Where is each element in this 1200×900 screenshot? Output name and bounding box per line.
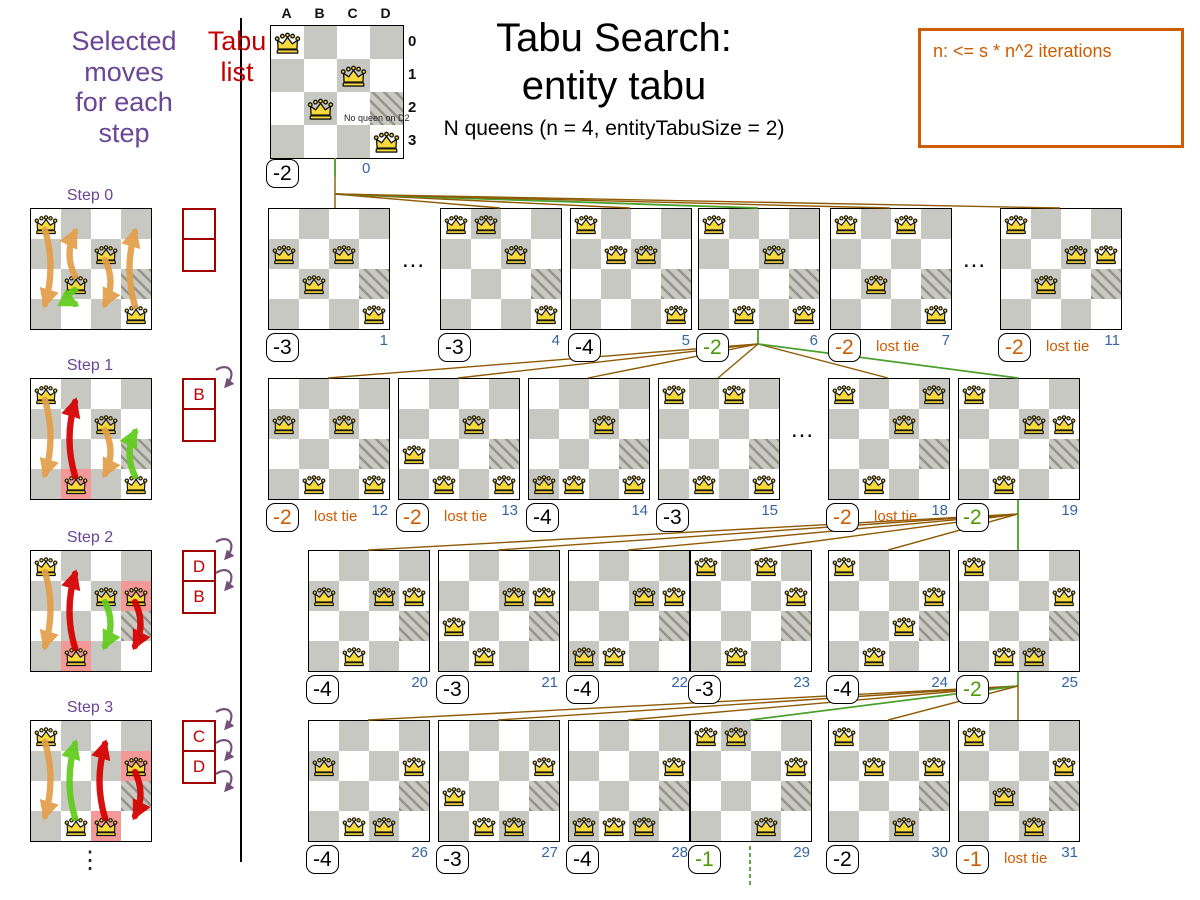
queen-icon [633,243,659,266]
queen-icon [1063,243,1089,266]
queen-icon [491,473,517,496]
cell-B3 [599,811,629,841]
queen-icon [723,725,749,748]
cell-D0 [370,26,403,59]
cell-A0 [691,551,721,581]
cell-A2 [829,439,859,469]
queen-icon [991,473,1017,496]
page-title-line2: entity tabu [418,62,810,110]
connection-line [335,194,890,208]
cell-A2 [831,269,861,299]
queen-icon [401,585,427,608]
cell-C1 [501,239,531,269]
score-13: -2 [396,503,429,532]
cell-D2 [919,439,949,469]
cell-C1 [629,751,659,781]
cell-D0 [661,209,691,239]
cell-D0 [489,379,519,409]
tabu-slot-1-0: B [182,378,216,412]
cell-D0 [121,209,151,239]
cell-B3 [721,641,751,671]
cell-C2 [891,269,921,299]
cell-D0 [1049,721,1079,751]
connection-line [498,514,1018,550]
cell-C2 [459,439,489,469]
cell-A1 [439,751,469,781]
heading-line: moves [84,57,164,87]
cell-D2 [789,269,819,299]
cell-D3 [370,125,403,158]
cell-B1 [469,751,499,781]
cell-A1 [959,581,989,611]
cell-D3 [781,641,811,671]
cell-C0 [499,721,529,751]
cell-B3 [859,811,889,841]
cell-B3 [339,641,369,671]
cell-D3 [359,469,389,499]
cell-A1 [309,751,339,781]
panel-divider [240,18,242,862]
cell-B0 [339,551,369,581]
cell-A1 [309,581,339,611]
cell-A1 [441,239,471,269]
cell-D3 [531,299,561,329]
cell-C2 [889,611,919,641]
board-29 [690,720,812,842]
heading-line: Tabu [208,26,267,56]
cell-B3 [61,811,91,841]
cell-C0 [459,379,489,409]
cell-B0 [689,379,719,409]
cell-C1 [1019,409,1049,439]
cell-B0 [469,551,499,581]
queen-icon [301,473,327,496]
gap-dots: ... [791,416,814,444]
tabu-shift-arrow-icon [212,364,240,392]
cell-B2 [989,611,1019,641]
cell-B1 [61,409,91,439]
cell-B1 [61,751,91,781]
cell-D1 [121,239,151,269]
cell-D0 [529,551,559,581]
cell-B3 [859,469,889,499]
cell-C0 [1061,209,1091,239]
queen-icon [961,383,987,406]
cell-D2 [661,269,691,299]
cell-A0 [959,379,989,409]
gap-dots: ... [963,246,986,274]
cell-D0 [659,721,689,751]
cell-C3 [499,641,529,671]
cell-D0 [1091,209,1121,239]
cell-D3 [121,811,151,841]
cell-B1 [469,581,499,611]
cell-D1 [921,239,951,269]
cell-B1 [689,409,719,439]
cell-D2 [659,781,689,811]
board-23 [690,550,812,672]
cell-C0 [629,721,659,751]
cell-B3 [299,299,329,329]
cell-B2 [859,781,889,811]
score-23: -3 [688,675,721,704]
tabu-slot-3-0: C [182,720,216,754]
cell-A3 [571,299,601,329]
cell-C2 [631,269,661,299]
cell-A3 [31,469,61,499]
cell-A1 [959,409,989,439]
cell-D3 [659,811,689,841]
step-label-1: Step 1 [30,357,150,375]
cell-C3 [329,469,359,499]
cell-C1 [889,409,919,439]
queen-icon [923,303,949,326]
cell-A0 [309,721,339,751]
queen-icon [591,413,617,436]
cell-C2 [589,439,619,469]
cell-A1 [831,239,861,269]
queen-icon [372,129,401,155]
cell-D2 [359,269,389,299]
cell-C1 [759,239,789,269]
page-title-line1: Tabu Search: [418,14,810,62]
board-30 [828,720,950,842]
cell-C0 [501,209,531,239]
cell-A3 [569,811,599,841]
connection-line [335,194,1060,208]
cell-C2 [91,439,121,469]
cell-C1 [499,581,529,611]
cell-B0 [721,551,751,581]
score-29: -1 [688,845,721,874]
queen-icon [663,303,689,326]
score-11: -2 [998,333,1031,362]
cell-C0 [329,209,359,239]
cell-A3 [269,299,299,329]
cell-D0 [359,209,389,239]
queen-icon [271,243,297,266]
cell-D3 [921,299,951,329]
score-5: -4 [568,333,601,362]
cell-B0 [339,721,369,751]
cell-D1 [781,751,811,781]
queen-icon [531,585,557,608]
queen-icon [341,645,367,668]
queen-icon [63,815,89,838]
tabu-slot-1-1 [182,408,216,442]
cell-C2 [499,781,529,811]
cell-B2 [299,439,329,469]
board-13 [398,378,520,500]
cell-B1 [989,581,1019,611]
score-21: -3 [436,675,469,704]
cell-C1 [369,751,399,781]
cell-D3 [121,299,151,329]
board-22 [568,550,690,672]
cell-D3 [661,299,691,329]
row-header-1: 1 [408,66,416,83]
cell-A0 [569,551,599,581]
cell-B2 [429,439,459,469]
step-board-3 [30,720,152,842]
cell-C2 [369,611,399,641]
board-18 [828,378,950,500]
cell-D2 [359,439,389,469]
cell-D0 [619,379,649,409]
queen-icon [63,273,89,296]
cell-D1 [529,751,559,781]
queen-icon [661,383,687,406]
score-28: -4 [566,845,599,874]
queen-icon [33,213,59,236]
cell-A2 [571,269,601,299]
cell-B1 [859,751,889,781]
cell-A2 [699,269,729,299]
score-22: -4 [566,675,599,704]
cell-B2 [61,781,91,811]
cell-A2 [271,92,304,125]
cell-B3 [601,299,631,329]
cell-D0 [919,551,949,581]
cell-A3 [569,641,599,671]
lost-tie-7: lost tie [876,338,919,355]
cell-C2 [759,269,789,299]
cell-A1 [529,409,559,439]
cell-D1 [531,239,561,269]
cell-A3 [269,469,299,499]
score-19: -2 [956,503,989,532]
cell-C3 [751,811,781,841]
cell-C2 [751,611,781,641]
cell-C0 [589,379,619,409]
queen-icon [503,243,529,266]
cell-B0 [989,379,1019,409]
cell-C3 [759,299,789,329]
board-6 [698,208,820,330]
queen-icon [33,725,59,748]
heading-line: list [221,57,254,87]
cell-B2 [601,269,631,299]
cell-A1 [571,239,601,269]
queen-icon [601,645,627,668]
queen-icon [401,443,427,466]
cell-A3 [441,299,471,329]
queen-icon [573,213,599,236]
queen-icon [301,273,327,296]
cell-D3 [359,299,389,329]
cell-A3 [829,469,859,499]
cell-D2 [1091,269,1121,299]
cell-A0 [31,551,61,581]
cell-B1 [601,239,631,269]
cell-C0 [759,209,789,239]
cell-B2 [1031,269,1061,299]
cell-B0 [599,551,629,581]
queen-icon [891,815,917,838]
queen-icon [731,303,757,326]
cell-B0 [859,379,889,409]
cell-C1 [459,409,489,439]
queen-icon [991,645,1017,668]
queen-icon [63,473,89,496]
board-5 [570,208,692,330]
board-27 [438,720,560,842]
queen-icon [501,815,527,838]
cell-D3 [789,299,819,329]
connection-line [888,686,1018,720]
cell-D2 [1049,611,1079,641]
cell-B2 [599,781,629,811]
cell-A2 [659,439,689,469]
cell-B2 [469,611,499,641]
queen-icon [371,815,397,838]
connection-line [335,194,758,208]
iterations-note-text: n: <= s * n^2 iterations [933,41,1112,61]
cell-B3 [1031,299,1061,329]
queen-icon [893,213,919,236]
queen-icon [831,725,857,748]
cell-A2 [569,781,599,811]
cell-A1 [31,751,61,781]
cell-C0 [751,551,781,581]
cell-C1 [889,751,919,781]
queen-icon [561,473,587,496]
cell-C3 [889,811,919,841]
cell-A3 [959,811,989,841]
cell-B2 [61,611,91,641]
cell-C1 [751,751,781,781]
cell-B3 [61,641,91,671]
queen-icon [631,815,657,838]
cell-D0 [121,379,151,409]
cell-A1 [439,581,469,611]
step-label-0: Step 0 [30,187,150,205]
cell-D3 [399,641,429,671]
cell-A1 [31,409,61,439]
queen-icon [863,273,889,296]
cell-A2 [269,269,299,299]
cell-B2 [721,781,751,811]
cell-B0 [299,379,329,409]
cell-D0 [781,551,811,581]
cell-A0 [439,551,469,581]
cell-B3 [469,811,499,841]
cell-A3 [529,469,559,499]
cell-A3 [829,641,859,671]
cell-A1 [1001,239,1031,269]
score-15: -3 [656,503,689,532]
cell-A2 [569,611,599,641]
cell-A3 [959,469,989,499]
queen-icon [753,555,779,578]
connection-line [328,344,758,378]
cell-D3 [1049,469,1079,499]
cell-B1 [1031,239,1061,269]
cell-D1 [919,581,949,611]
queen-icon [471,645,497,668]
cell-B1 [61,239,91,269]
cell-D2 [121,269,151,299]
cell-A2 [691,781,721,811]
queen-icon [401,755,427,778]
tabu-slot-3-1: D [182,750,216,784]
cell-C2 [889,439,919,469]
lost-tie-31: lost tie [1004,850,1047,867]
cell-C1 [91,581,121,611]
queen-icon [431,473,457,496]
cell-B1 [721,581,751,611]
queen-icon [861,645,887,668]
score-1: -3 [266,333,299,362]
cell-D1 [370,59,403,92]
cell-B1 [304,59,337,92]
cell-C2 [889,781,919,811]
iterations-note-box: n: <= s * n^2 iterations [918,28,1184,148]
cell-D0 [919,379,949,409]
queen-icon [601,815,627,838]
tabu-slot-0-0 [182,208,216,242]
cell-D2 [121,439,151,469]
cell-B2 [721,611,751,641]
cell-D2 [529,781,559,811]
cell-A1 [31,581,61,611]
cell-B0 [989,721,1019,751]
cell-B3 [429,469,459,499]
cell-C3 [369,641,399,671]
tabu-shift-arrow-icon [212,567,240,595]
queen-icon [753,815,779,838]
queen-icon [833,213,859,236]
cell-B0 [61,209,91,239]
cell-A3 [659,469,689,499]
cell-A2 [959,439,989,469]
cell-A2 [439,781,469,811]
cell-B0 [299,209,329,239]
cell-D3 [529,811,559,841]
cell-C0 [91,721,121,751]
queen-icon [341,815,367,838]
queen-icon [661,585,687,608]
cell-D2 [749,439,779,469]
cell-B2 [689,439,719,469]
queen-icon [63,645,89,668]
cell-A1 [269,409,299,439]
cell-D1 [121,409,151,439]
cell-D0 [749,379,779,409]
cell-C2 [751,781,781,811]
cell-C3 [91,641,121,671]
cell-A0 [441,209,471,239]
queen-icon [691,473,717,496]
cell-B0 [61,551,91,581]
cell-B3 [471,299,501,329]
queen-icon [533,303,559,326]
cell-B2 [299,269,329,299]
cell-D0 [1049,379,1079,409]
queen-icon [701,213,727,236]
queen-icon [723,645,749,668]
cell-B0 [429,379,459,409]
cell-D1 [121,751,151,781]
root-board [270,25,404,159]
cell-A3 [829,811,859,841]
cell-D3 [1049,811,1079,841]
cell-A0 [699,209,729,239]
cell-A3 [959,641,989,671]
cell-B3 [859,641,889,671]
cell-A1 [691,751,721,781]
cell-A0 [959,721,989,751]
